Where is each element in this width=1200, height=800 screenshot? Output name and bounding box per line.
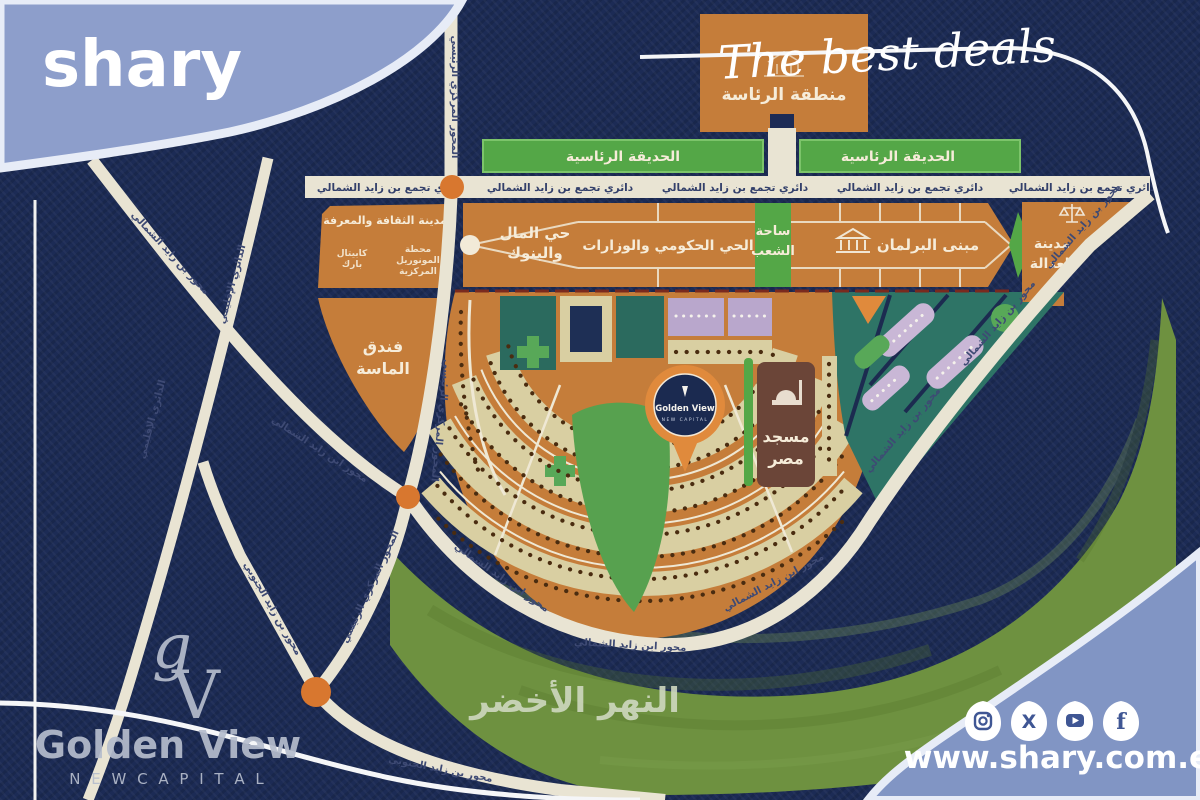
green-river-label: النهر الأخضر xyxy=(468,679,680,721)
masterplan-map: النهر الأخضر xyxy=(0,0,1200,800)
junction-circle-west xyxy=(396,485,420,509)
mosque-label-2: مصر xyxy=(767,449,804,468)
ring-road-label-4: دائري تجمع بن زايد الشمالي xyxy=(837,182,984,194)
ring-road-label-5: دائري تجمع بن زايد الشمالي xyxy=(1009,182,1156,194)
culture-city-block: مدينة الثقافة والمعرفة كابيتال بارك محطة… xyxy=(318,204,448,288)
culture-city-label: مدينة الثقافة والمعرفة xyxy=(323,214,446,227)
garden-label-east: الحديقة الرئاسية xyxy=(841,149,955,165)
presidential-access-road xyxy=(768,128,796,180)
ring-road-label-3: دائري تجمع بن زايد الشمالي xyxy=(662,182,809,194)
top-left-wave: shary xyxy=(0,0,462,168)
central-axis-label-1: المحور المركزي الرئيسي xyxy=(449,36,460,159)
government-district-label: الحي الحكومي والوزارات xyxy=(582,238,753,254)
watermark-name: Golden View xyxy=(35,723,301,767)
egypt-mosque-block: مسجد مصر xyxy=(744,356,837,487)
regional-ring-label-2: الدائري الإقليمي xyxy=(137,379,169,460)
golden-view-watermark: g V Golden View N E W C A P I T A L xyxy=(35,610,301,788)
almasa-label-2: الماسة xyxy=(356,359,410,378)
axis-north-label-1: محور بن زايد الشمالي xyxy=(129,210,211,297)
svg-text:f: f xyxy=(1116,709,1127,735)
capital-park-label-2: بارك xyxy=(342,260,362,270)
band-west-roundabout xyxy=(460,235,480,255)
monorail-label-2: المونوريل xyxy=(396,256,440,266)
poster-stage: النهر الأخضر xyxy=(0,0,1200,800)
presidential-gardens: الحديقة الرئاسية الحديقة الرئاسية xyxy=(483,140,1020,172)
ring-road-label-2: دائري تجمع بن زايد الشمالي xyxy=(487,182,634,194)
money-banks-label-1: حي المال xyxy=(500,224,571,242)
svg-text:X: X xyxy=(1022,711,1037,733)
garden-label-west: الحديقة الرئاسية xyxy=(566,149,680,165)
government-band: حي المال والبنوك الحي الحكومي والوزارات … xyxy=(455,203,1032,291)
capital-park-label-1: كابيتال xyxy=(337,249,368,259)
monorail-label-1: محطة xyxy=(405,245,431,255)
website-link[interactable]: www.shary.com.eg xyxy=(904,740,1200,776)
almasa-label-1: فندق xyxy=(363,337,404,356)
peoples-square-label-2: الشعب xyxy=(751,244,795,259)
junction-circle-north xyxy=(440,175,464,199)
mosque-label-1: مسجد xyxy=(763,427,810,446)
watermark-subtitle: N E W C A P I T A L xyxy=(69,770,266,788)
east-residential-region xyxy=(832,292,1064,508)
junction-circle-south xyxy=(301,677,331,707)
monorail-label-3: المركزية xyxy=(399,267,437,277)
parliament-label: مبنى البرلمان xyxy=(877,236,979,254)
pin-name: Golden View xyxy=(655,404,715,414)
pin-subtitle: NEW CAPITAL xyxy=(662,417,709,423)
money-banks-label-2: والبنوك xyxy=(507,244,563,262)
peoples-square-label-1: ساحة xyxy=(756,224,791,239)
shary-logo: shary xyxy=(42,28,242,102)
axis-south-label-1: محور بن زايد الجنوبي xyxy=(241,560,304,657)
